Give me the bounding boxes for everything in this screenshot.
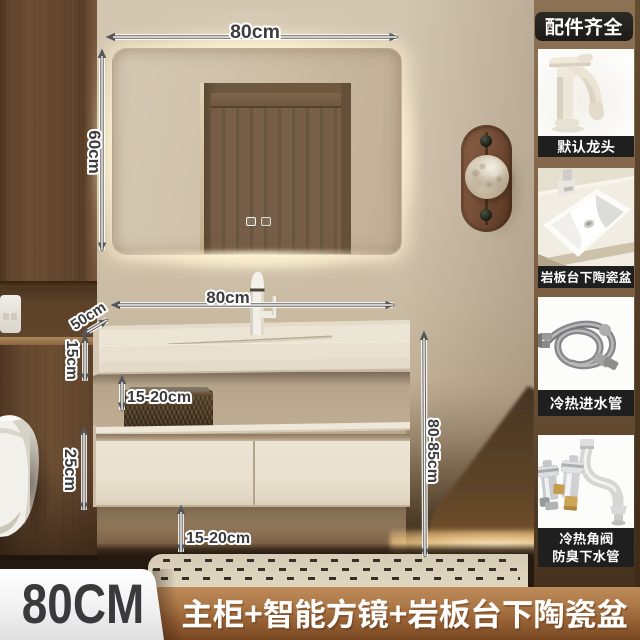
svg-text:80-85cm: 80-85cm bbox=[424, 419, 441, 483]
svg-text:60cm: 60cm bbox=[85, 130, 104, 173]
svg-text:15-20cm: 15-20cm bbox=[127, 389, 191, 406]
svg-text:25cm: 25cm bbox=[61, 449, 79, 491]
svg-text:80cm: 80cm bbox=[230, 21, 280, 43]
svg-text:80cm: 80cm bbox=[206, 288, 249, 307]
svg-text:15cm: 15cm bbox=[63, 340, 80, 380]
svg-text:15-20cm: 15-20cm bbox=[186, 530, 250, 547]
